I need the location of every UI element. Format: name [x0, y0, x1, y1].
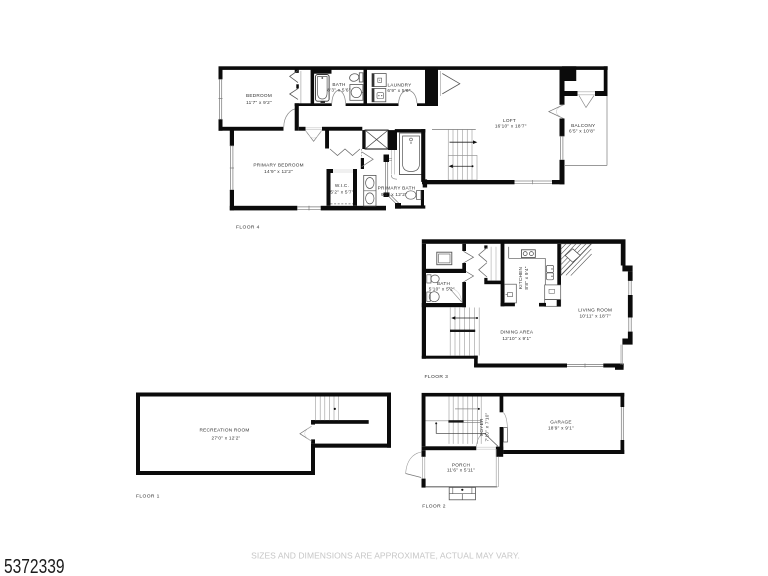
svg-text:BATH: BATH — [437, 281, 450, 286]
svg-text:5372339: 5372339 — [4, 556, 65, 576]
svg-text:6'5" x 10'8": 6'5" x 10'8" — [569, 129, 595, 134]
svg-text:FOYER: FOYER — [479, 418, 484, 436]
svg-text:LAUNDRY: LAUNDRY — [387, 82, 412, 87]
svg-text:BATH: BATH — [332, 82, 345, 87]
svg-text:10'11" x 18'7": 10'11" x 18'7" — [579, 313, 611, 318]
svg-text:8'8" x 9'4": 8'8" x 9'4" — [524, 266, 529, 289]
svg-text:W.I.C.: W.I.C. — [335, 183, 349, 188]
svg-text:PRIMARY BEDROOM: PRIMARY BEDROOM — [253, 163, 303, 168]
svg-text:FLOOR 1: FLOOR 1 — [136, 494, 160, 500]
svg-text:PRIMARY BATH: PRIMARY BATH — [378, 185, 416, 190]
svg-text:KITCHEN: KITCHEN — [518, 267, 523, 289]
svg-text:LOFT: LOFT — [503, 118, 516, 123]
svg-text:7'10" x 7'10": 7'10" x 7'10" — [484, 412, 489, 441]
svg-text:PORCH: PORCH — [452, 462, 470, 467]
svg-text:FLOOR 2: FLOOR 2 — [422, 504, 446, 510]
svg-text:RECREATION ROOM: RECREATION ROOM — [199, 428, 249, 433]
svg-text:16'10" x 18'7": 16'10" x 18'7" — [495, 124, 527, 129]
svg-text:FLOOR 3: FLOOR 3 — [425, 374, 449, 380]
svg-text:9'2" x 12'2": 9'2" x 12'2" — [381, 192, 407, 197]
svg-text:GARAGE: GARAGE — [550, 419, 572, 424]
svg-text:18'9" x 9'1": 18'9" x 9'1" — [548, 426, 574, 431]
svg-text:5'10" x 5'2": 5'10" x 5'2" — [429, 286, 455, 291]
svg-text:27'0" x 12'2": 27'0" x 12'2" — [212, 435, 241, 440]
svg-text:8'3" x 5'6": 8'3" x 5'6" — [327, 87, 350, 92]
svg-text:12'10" x 9'1": 12'10" x 9'1" — [502, 336, 531, 341]
svg-text:14'9" x 12'2": 14'9" x 12'2" — [264, 169, 293, 174]
svg-text:BALCONY: BALCONY — [571, 123, 596, 128]
svg-text:11'6" x 5'11": 11'6" x 5'11" — [447, 468, 475, 473]
svg-text:11'7" x 9'2": 11'7" x 9'2" — [246, 100, 272, 105]
svg-text:DINING AREA: DINING AREA — [500, 329, 534, 334]
svg-text:FLOOR 4: FLOOR 4 — [236, 224, 260, 230]
svg-text:6'9" x 5'6": 6'9" x 5'6" — [387, 88, 410, 93]
svg-text:LIVING ROOM: LIVING ROOM — [578, 307, 612, 312]
svg-text:5'2" x 5'7": 5'2" x 5'7" — [330, 190, 353, 195]
svg-text:BEDROOM: BEDROOM — [246, 93, 272, 98]
svg-text:SIZES AND DIMENSIONS ARE APPRO: SIZES AND DIMENSIONS ARE APPROXIMATE, AC… — [251, 551, 520, 561]
